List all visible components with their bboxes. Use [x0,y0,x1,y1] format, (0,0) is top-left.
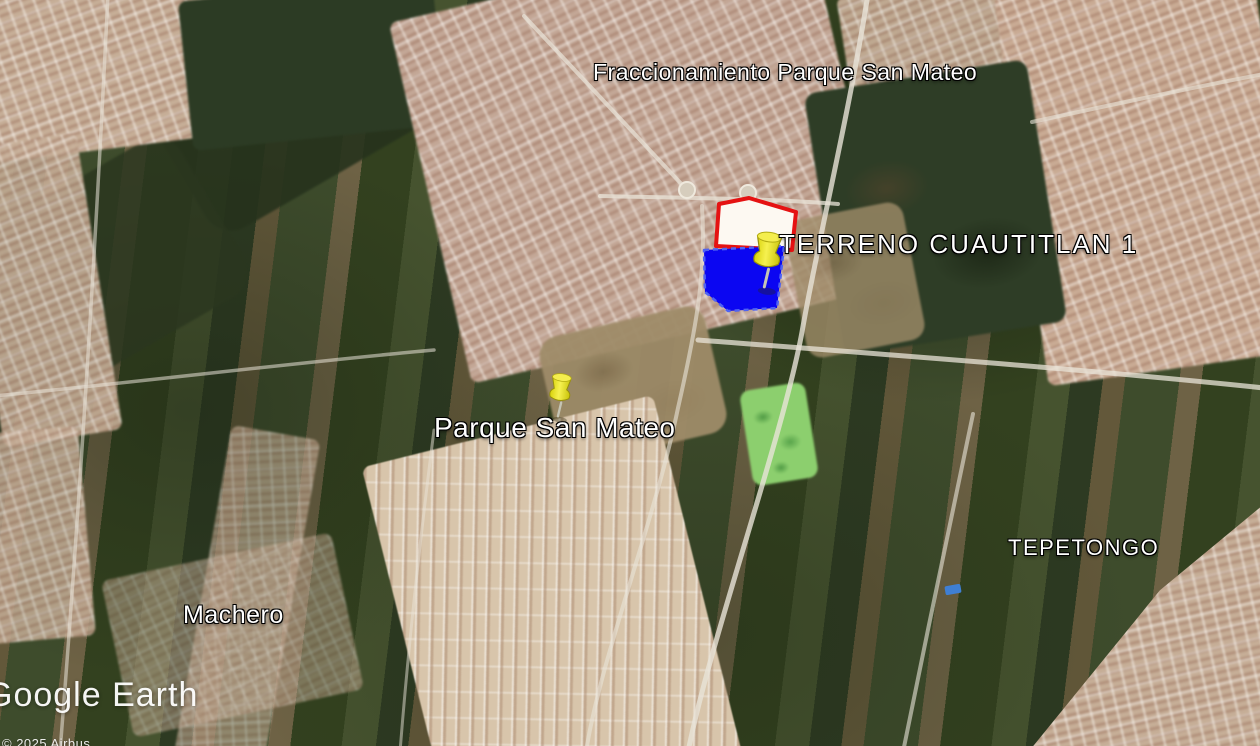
imagery-attribution: © 2025 Airbus [2,736,90,746]
label-machero: Machero [183,601,284,630]
label-tepetongo: TEPETONGO [1008,535,1159,561]
satellite-imagery [0,0,1260,746]
placemark-label-terreno-cuautitlan-1[interactable]: TERRENO CUAUTITLAN 1 [779,229,1138,260]
placemark-label-parque-san-mateo[interactable]: Parque San Mateo [434,412,676,444]
google-earth-watermark: Google Earth [0,676,198,715]
label-fraccionamiento-parque-san-mateo: Fraccionamiento Parque San Mateo [593,59,977,86]
google-earth-viewport[interactable]: Fraccionamiento Parque San Mateo TERRENO… [0,0,1260,746]
